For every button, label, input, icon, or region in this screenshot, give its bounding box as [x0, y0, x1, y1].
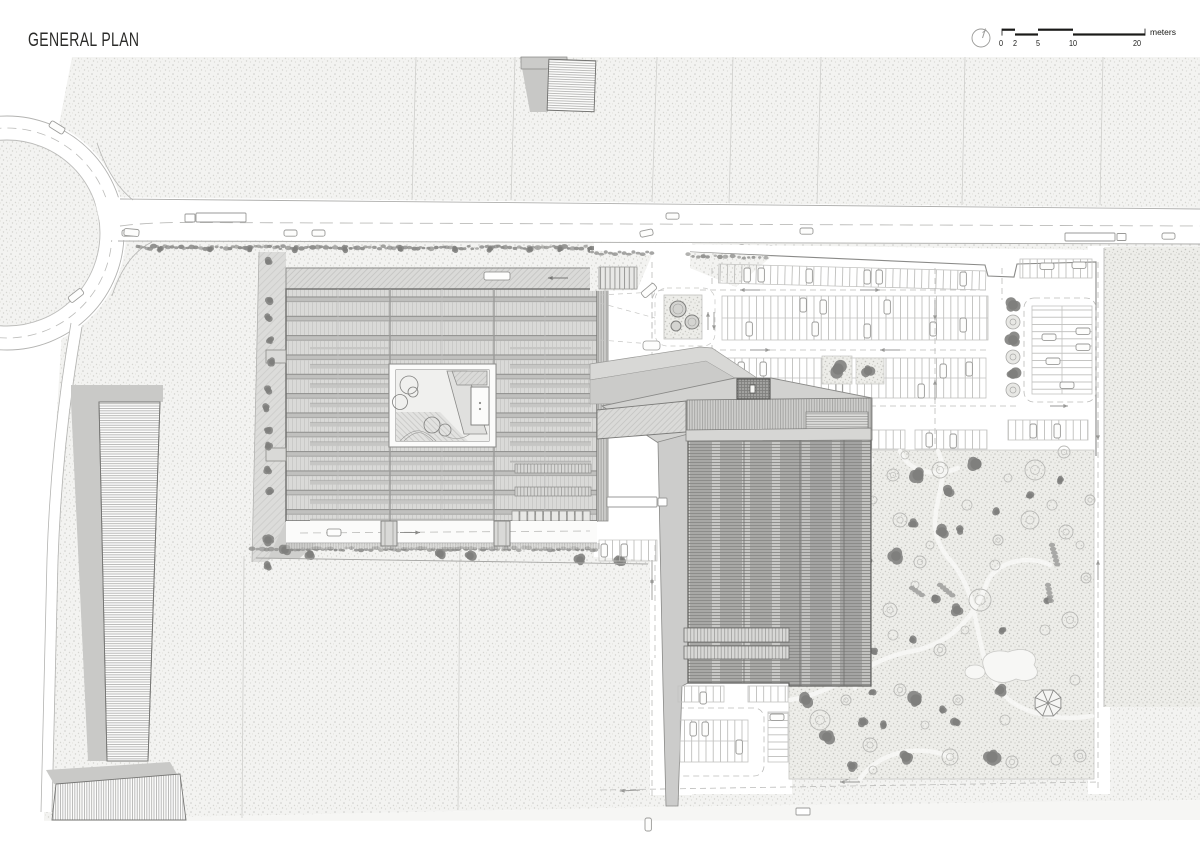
svg-text:meters: meters [1150, 27, 1176, 37]
svg-text:20: 20 [1133, 38, 1142, 48]
svg-text:2: 2 [1013, 38, 1017, 48]
svg-text:5: 5 [1036, 38, 1041, 48]
svg-text:0: 0 [999, 38, 1004, 48]
svg-text:GENERAL PLAN: GENERAL PLAN [28, 29, 139, 51]
svg-text:10: 10 [1069, 38, 1078, 48]
